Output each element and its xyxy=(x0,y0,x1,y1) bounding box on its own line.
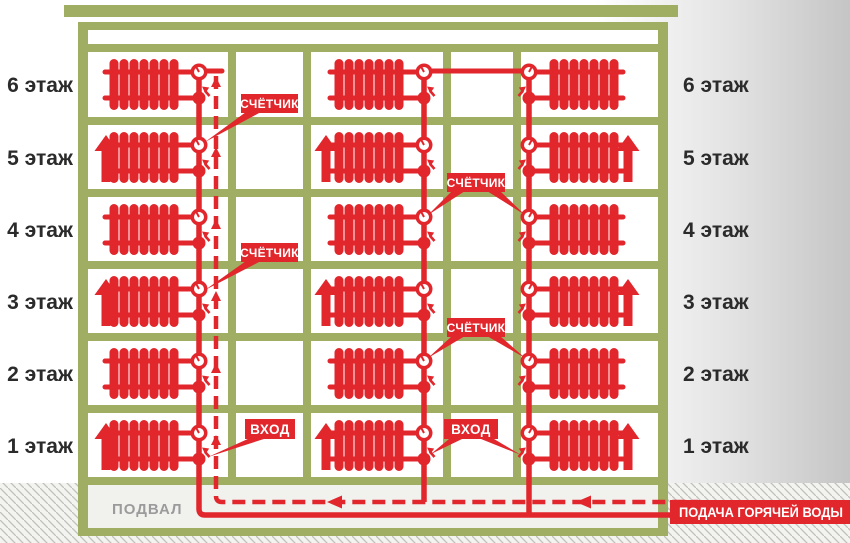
floor-label: 5 этаж xyxy=(683,147,750,170)
meter-label: СЧЁТЧИК xyxy=(240,245,299,260)
entry-label: ВХОД xyxy=(451,422,491,437)
meter-label: СЧЁТЧИК xyxy=(447,320,506,335)
floor-label: 4 этаж xyxy=(7,219,74,242)
hot-water-supply-banner: ПОДАЧА ГОРЯЧЕЙ ВОДЫ xyxy=(670,500,850,524)
floor-label: 2 этаж xyxy=(7,363,74,386)
floor-label: 6 этаж xyxy=(7,74,74,97)
floor-label: 3 этаж xyxy=(7,291,74,314)
floor-label: 1 этаж xyxy=(683,435,750,458)
floor-label: 3 этаж xyxy=(683,291,750,314)
entry-label: ВХОД xyxy=(250,422,290,437)
diagram-canvas: СЧЁТЧИК СЧЁТЧИК СЧЁТЧИК СЧЁТЧИК ВХОД ВХО… xyxy=(0,0,850,543)
floor-label: 4 этаж xyxy=(683,219,750,242)
hot-water-supply-label: ПОДАЧА ГОРЯЧЕЙ ВОДЫ xyxy=(679,505,843,520)
attic-strip xyxy=(88,30,658,44)
roof-bar xyxy=(64,5,678,17)
floor-label: 1 этаж xyxy=(7,435,74,458)
floor-label: 2 этаж xyxy=(683,363,750,386)
floor-label: 6 этаж xyxy=(683,74,750,97)
meter-label: СЧЁТЧИК xyxy=(240,96,299,111)
heating-scheme-diagram: СЧЁТЧИК СЧЁТЧИК СЧЁТЧИК СЧЁТЧИК ВХОД ВХО… xyxy=(0,0,850,543)
basement-label: ПОДВАЛ xyxy=(112,501,183,518)
floor-labels-left: 6 этаж 5 этаж 4 этаж 3 этаж 2 этаж 1 эта… xyxy=(7,74,74,458)
meter-label: СЧЁТЧИК xyxy=(447,175,506,190)
floor-label: 5 этаж xyxy=(7,147,74,170)
floor-labels-right: 6 этаж 5 этаж 4 этаж 3 этаж 2 этаж 1 эта… xyxy=(683,74,750,458)
